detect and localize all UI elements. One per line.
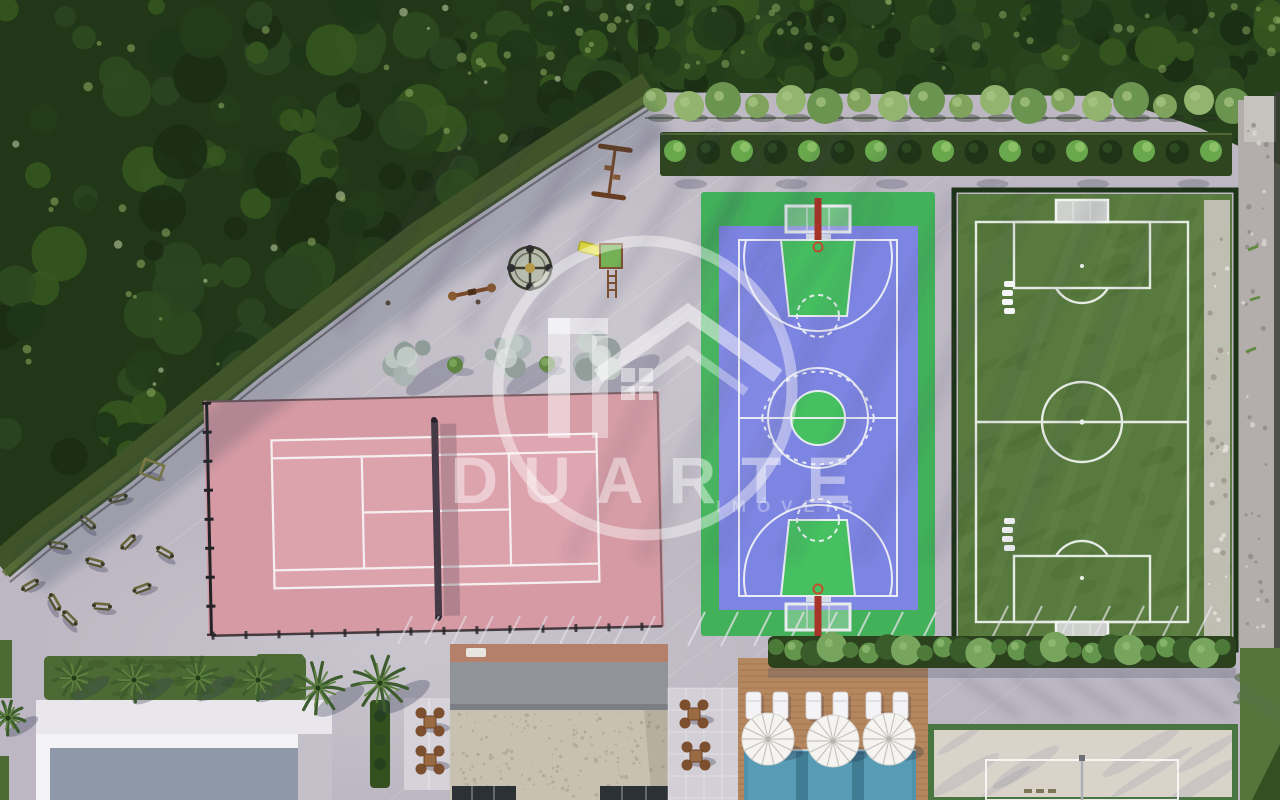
pool-umbrellas: [742, 713, 924, 767]
lawn-edge: [0, 756, 9, 800]
penalty-spot: [1080, 576, 1084, 580]
wall-corner: [1244, 96, 1276, 142]
sand-marks: [1024, 789, 1056, 793]
stone-path: [1238, 100, 1274, 648]
hoop-pole: [815, 596, 822, 638]
clubhouse-main: [450, 644, 668, 800]
glass-wall: [600, 786, 668, 800]
lawn-edge: [0, 640, 12, 698]
watermark-subtitle: IMÓVEIS: [716, 497, 864, 516]
aerial-render: DUARTE IMÓVEIS: [0, 0, 1280, 800]
boundary-wall: [1274, 92, 1280, 652]
soccer-field: [930, 180, 1280, 654]
clubhouse-west: [36, 700, 332, 800]
gravel-path: [1238, 92, 1280, 652]
roof-panel: [50, 748, 298, 800]
penalty-spot: [1080, 264, 1084, 268]
aerial-render-page: DUARTE IMÓVEIS: [0, 0, 1280, 800]
net-post: [1079, 755, 1085, 761]
building-wall: [36, 700, 332, 738]
glass-wall: [452, 786, 516, 800]
roof-side: [298, 734, 332, 800]
hedge-row-south: [768, 632, 1236, 678]
beach-volleyball-court: [929, 722, 1245, 800]
center-spot: [1079, 419, 1084, 424]
flat-roof: [450, 662, 668, 710]
roof-vent: [466, 648, 486, 657]
pool-deck: [738, 658, 928, 800]
